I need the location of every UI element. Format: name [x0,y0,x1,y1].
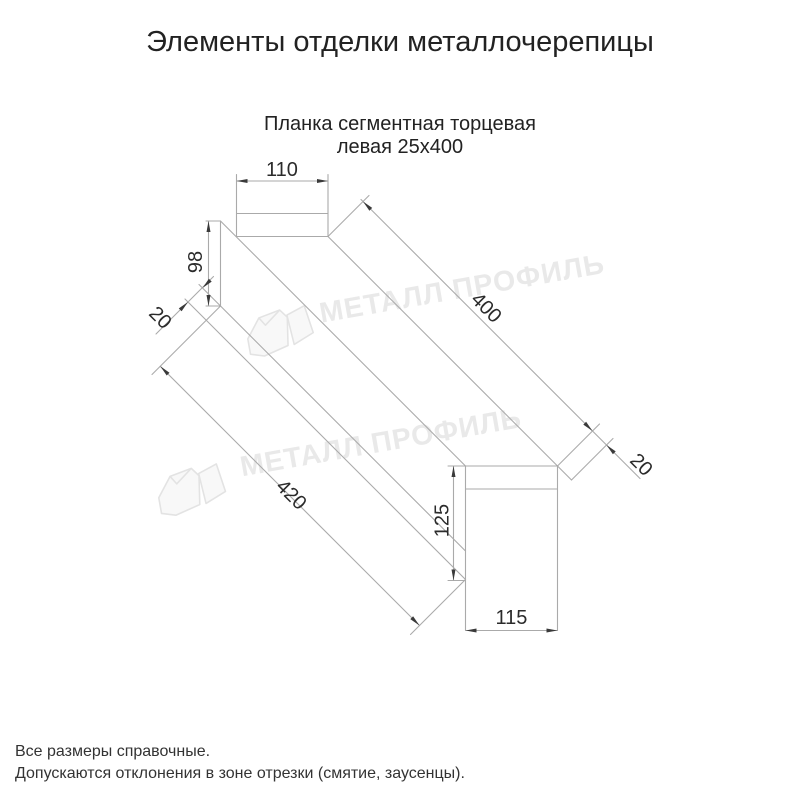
svg-text:98: 98 [185,251,207,273]
svg-text:400: 400 [466,288,505,327]
svg-text:125: 125 [432,504,454,537]
svg-text:420: 420 [271,475,310,514]
svg-text:20: 20 [625,449,656,480]
svg-text:110: 110 [266,159,298,181]
svg-text:115: 115 [496,607,528,629]
svg-text:20: 20 [144,302,175,333]
